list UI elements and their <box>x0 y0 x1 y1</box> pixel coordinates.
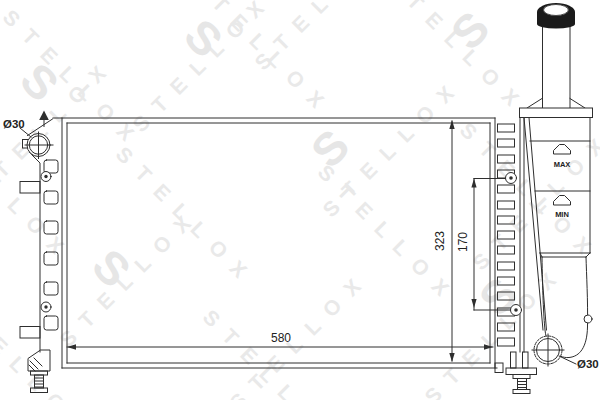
dimension-core-width <box>67 344 493 349</box>
left-mounting-stud <box>31 371 48 393</box>
dimension-bracket-spacing <box>471 179 510 311</box>
clip <box>44 316 58 330</box>
clip <box>44 191 58 204</box>
radiator-drawing-page: STELLOX STELLOX STELLOX STELLOX STELLOX … <box>0 0 600 400</box>
filler-cap <box>537 3 575 108</box>
clip <box>44 221 58 234</box>
label-core-width: 580 <box>271 331 291 345</box>
side-stub <box>20 182 40 194</box>
right-tank-ribs <box>498 118 525 353</box>
label-min-level: MIN <box>555 210 569 219</box>
clip <box>44 282 58 295</box>
clip <box>44 252 58 265</box>
min-level-icon <box>554 196 571 205</box>
label-max-level: MAX <box>554 160 571 169</box>
right-mounting-stud <box>513 375 530 394</box>
left-foot-bracket <box>28 350 50 371</box>
radiator-technical-diagram: Ø30 580 323 170 MAX MIN Ø30 <box>0 0 600 400</box>
right-mounting-pins <box>506 173 522 316</box>
side-stub <box>20 327 40 339</box>
outlet-port <box>532 334 564 366</box>
label-inlet-diameter: Ø30 <box>3 118 25 130</box>
expansion-tank <box>520 3 593 358</box>
mounting-pin <box>41 172 51 313</box>
right-foot-bracket <box>506 352 537 375</box>
label-bracket-spacing: 170 <box>456 232 470 252</box>
bleed-valve-arrow <box>39 111 49 127</box>
label-outlet-diameter: Ø30 <box>577 358 599 370</box>
dimension-core-height <box>449 120 454 362</box>
max-level-icon <box>554 145 571 154</box>
label-core-height: 323 <box>433 231 447 251</box>
inlet-port <box>23 132 54 159</box>
tank-flange <box>520 108 593 118</box>
